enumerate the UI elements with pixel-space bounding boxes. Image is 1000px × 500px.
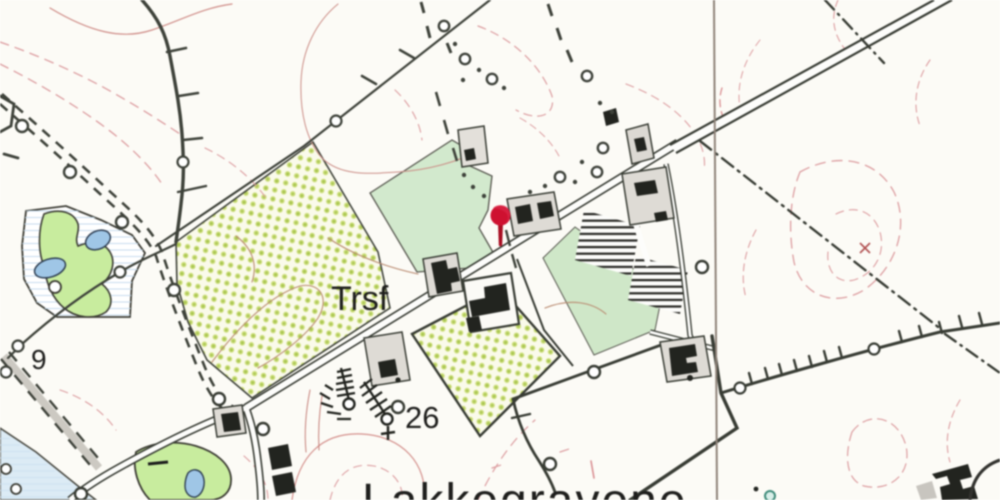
svg-text:Lakkegravene: Lakkegravene (362, 475, 688, 500)
svg-text:26: 26 (405, 400, 439, 435)
svg-text:9: 9 (31, 344, 47, 375)
svg-text:Trsf: Trsf (331, 280, 389, 318)
